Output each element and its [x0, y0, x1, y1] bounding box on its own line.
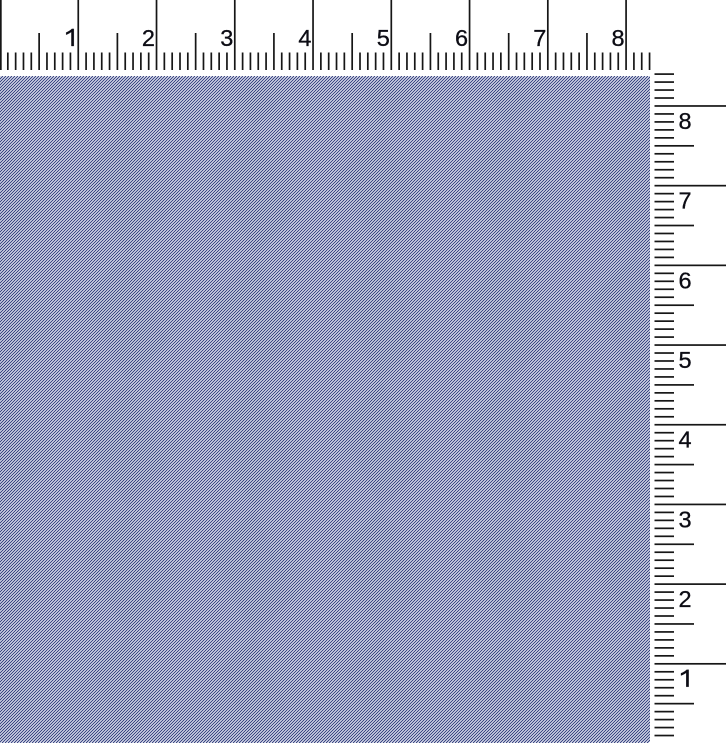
svg-text:5: 5	[679, 347, 692, 373]
svg-text:3: 3	[679, 506, 692, 532]
svg-text:2: 2	[679, 586, 692, 612]
svg-text:4: 4	[679, 427, 692, 453]
svg-text:8: 8	[679, 108, 692, 134]
svg-text:6: 6	[679, 267, 692, 293]
svg-text:7: 7	[679, 188, 692, 214]
